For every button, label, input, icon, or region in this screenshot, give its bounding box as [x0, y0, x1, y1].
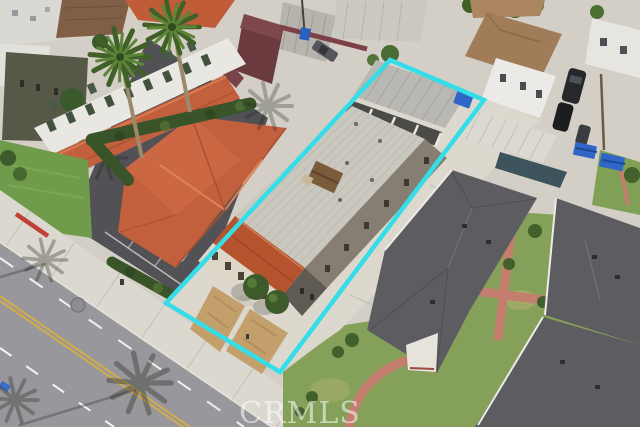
hydrant — [120, 279, 124, 285]
round-tree — [243, 274, 269, 300]
watermark: CRMLS — [239, 396, 361, 427]
blue-bin — [299, 27, 311, 41]
aerial-photo: CRMLS — [0, 0, 640, 427]
person — [246, 334, 249, 339]
tree — [0, 150, 16, 166]
manhole-cover — [71, 298, 85, 312]
aerial-scene: CRMLS — [0, 0, 640, 427]
round-tree — [265, 290, 289, 314]
